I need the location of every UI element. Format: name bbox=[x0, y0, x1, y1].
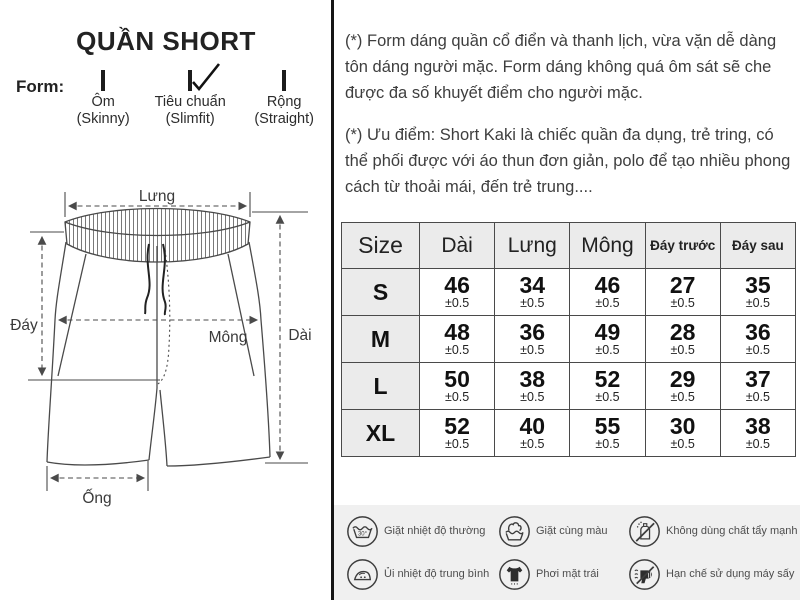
form-option-straight: Rộng (Straight) bbox=[238, 72, 330, 128]
size-label: S bbox=[342, 269, 420, 316]
form-option-slimfit: Tiêu chuẩn (Slimfit) bbox=[142, 72, 238, 128]
form-options: Ôm (Skinny) Tiêu chuẩn (Slimfit) Rộng (S bbox=[64, 72, 330, 128]
col-header-length: Dài bbox=[420, 223, 495, 269]
checkmark-icon bbox=[189, 60, 221, 92]
form-selector: Form: Ôm (Skinny) Tiêu chuẩn (Slimfit) bbox=[16, 72, 324, 128]
form-option-skinny: Ôm (Skinny) bbox=[64, 72, 142, 128]
description-paragraph-2: (*) Ưu điểm: Short Kaki là chiếc quần đa… bbox=[345, 122, 797, 200]
page-title: QUẦN SHORT bbox=[0, 26, 332, 57]
checkbox-slimfit-checked[interactable] bbox=[188, 70, 192, 91]
form-option-label: Rộng bbox=[238, 94, 330, 111]
measurement-cell: 48±0.5 bbox=[420, 316, 495, 363]
size-label: XL bbox=[342, 410, 420, 457]
measurement-cell: 28±0.5 bbox=[645, 316, 720, 363]
measurement-cell: 38±0.5 bbox=[720, 410, 795, 457]
care-label: Giặt cùng màu bbox=[536, 525, 608, 537]
measurement-cell: 52±0.5 bbox=[420, 410, 495, 457]
diagram-label-leg-opening: Ống bbox=[82, 489, 111, 507]
col-header-back-rise: Đáy sau bbox=[720, 223, 795, 269]
care-item-dry-inside-out: Phơi mặt trái bbox=[498, 558, 628, 591]
col-header-hip: Mông bbox=[570, 223, 645, 269]
measurement-cell: 55±0.5 bbox=[570, 410, 645, 457]
wash-temp-icon: 30° bbox=[346, 515, 379, 548]
diagram-label-hip: Mông bbox=[209, 329, 248, 346]
col-header-size: Size bbox=[342, 223, 420, 269]
measurement-cell: 37±0.5 bbox=[720, 363, 795, 410]
checkbox-skinny[interactable] bbox=[101, 70, 105, 91]
care-item-no-tumble-dry: Hạn chế sử dụng máy sấy bbox=[628, 558, 800, 591]
measurement-cell: 49±0.5 bbox=[570, 316, 645, 363]
diagram-label-length: Dài bbox=[288, 327, 311, 344]
care-item-wash-temp: 30° Giặt nhiệt độ thường bbox=[346, 515, 498, 548]
form-option-label: Tiêu chuẩn bbox=[142, 94, 238, 111]
form-option-label: Ôm bbox=[64, 94, 142, 111]
col-header-front-rise: Đáy trước bbox=[645, 223, 720, 269]
size-row-s: S 46±0.5 34±0.5 46±0.5 27±0.5 35±0.5 bbox=[342, 269, 796, 316]
size-row-m: M 48±0.5 36±0.5 49±0.5 28±0.5 36±0.5 bbox=[342, 316, 796, 363]
care-item-wash-same-color: Giặt cùng màu bbox=[498, 515, 628, 548]
measurement-cell: 46±0.5 bbox=[420, 269, 495, 316]
measurement-cell: 52±0.5 bbox=[570, 363, 645, 410]
measurement-cell: 40±0.5 bbox=[495, 410, 570, 457]
no-bleach-icon bbox=[628, 515, 661, 548]
measurement-cell: 36±0.5 bbox=[720, 316, 795, 363]
diagram-label-rise: Đáy bbox=[10, 317, 38, 334]
care-label: Phơi mặt trái bbox=[536, 568, 599, 580]
size-table: Size Dài Lưng Mông Đáy trước Đáy sau S 4… bbox=[341, 222, 796, 457]
description-paragraph-1: (*) Form dáng quần cổ điển và thanh lịch… bbox=[345, 28, 797, 106]
right-panel: (*) Form dáng quần cổ điển và thanh lịch… bbox=[334, 0, 800, 600]
col-header-waist: Lưng bbox=[495, 223, 570, 269]
size-table-header-row: Size Dài Lưng Mông Đáy trước Đáy sau bbox=[342, 223, 796, 269]
care-label: Giặt nhiệt độ thường bbox=[384, 525, 485, 537]
care-label: Hạn chế sử dụng máy sấy bbox=[666, 568, 794, 580]
size-row-xl: XL 52±0.5 40±0.5 55±0.5 30±0.5 38±0.5 bbox=[342, 410, 796, 457]
size-guide-page: QUẦN SHORT Form: Ôm (Skinny) Tiêu chuẩn bbox=[0, 0, 800, 600]
measurement-cell: 36±0.5 bbox=[495, 316, 570, 363]
form-option-sublabel: (Slimfit) bbox=[142, 111, 238, 128]
care-instructions: 30° Giặt nhiệt độ thường Giặt cùng màu bbox=[334, 505, 800, 600]
measurement-cell: 38±0.5 bbox=[495, 363, 570, 410]
measurement-cell: 30±0.5 bbox=[645, 410, 720, 457]
dry-inside-out-icon bbox=[498, 558, 531, 591]
measurement-cell: 34±0.5 bbox=[495, 269, 570, 316]
form-label: Form: bbox=[16, 72, 64, 128]
care-item-iron-medium: Ủi nhiệt độ trung bình bbox=[346, 558, 498, 591]
measurement-cell: 46±0.5 bbox=[570, 269, 645, 316]
checkbox-straight[interactable] bbox=[282, 70, 286, 91]
svg-text:30°: 30° bbox=[358, 531, 368, 537]
shorts-measurement-diagram: Lưng Đáy Mông Dài Ống bbox=[0, 180, 330, 510]
diagram-label-waist: Lưng bbox=[139, 188, 175, 205]
iron-medium-icon bbox=[346, 558, 379, 591]
measurement-cell: 35±0.5 bbox=[720, 269, 795, 316]
no-tumble-dry-icon bbox=[628, 558, 661, 591]
size-label: L bbox=[342, 363, 420, 410]
form-option-sublabel: (Skinny) bbox=[64, 111, 142, 128]
size-label: M bbox=[342, 316, 420, 363]
form-option-sublabel: (Straight) bbox=[238, 111, 330, 128]
measurement-cell: 50±0.5 bbox=[420, 363, 495, 410]
care-label: Không dùng chất tẩy mạnh bbox=[666, 525, 797, 537]
measurement-cell: 27±0.5 bbox=[645, 269, 720, 316]
care-label: Ủi nhiệt độ trung bình bbox=[384, 568, 489, 580]
size-row-l: L 50±0.5 38±0.5 52±0.5 29±0.5 37±0.5 bbox=[342, 363, 796, 410]
wash-same-color-icon bbox=[498, 515, 531, 548]
measurement-cell: 29±0.5 bbox=[645, 363, 720, 410]
care-item-no-bleach: Không dùng chất tẩy mạnh bbox=[628, 515, 800, 548]
left-panel: QUẦN SHORT Form: Ôm (Skinny) Tiêu chuẩn bbox=[0, 0, 332, 600]
